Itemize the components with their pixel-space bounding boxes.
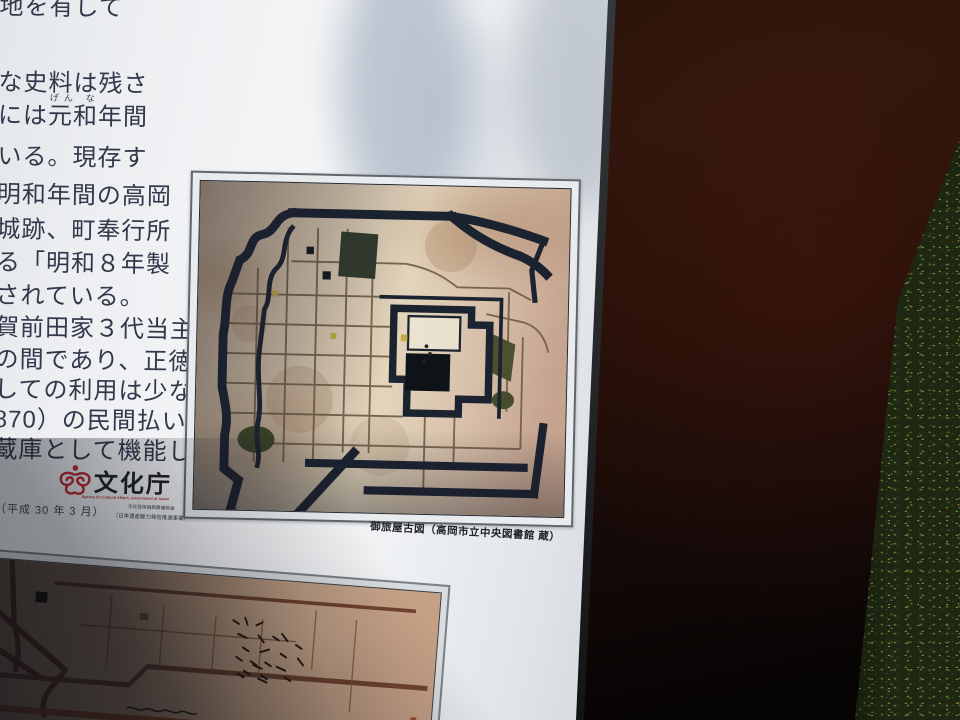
old-map-frame xyxy=(183,171,581,528)
second-old-map-illustration xyxy=(0,556,442,720)
photo-of-information-sign: 地を有して な史料は残さ には元和げん な年間 いる。現存す 明和年間の高岡 城… xyxy=(0,0,960,720)
sign-text-line: 明和年間の高岡 xyxy=(0,174,172,211)
sign-text-line-ruby: には元和げん な年間 xyxy=(0,92,148,132)
old-map-drawing xyxy=(193,181,570,517)
sign-panel: 地を有して な史料は残さ には元和げん な年間 いる。現存す 明和年間の高岡 城… xyxy=(0,0,680,720)
ruby-suffix: 年間 xyxy=(98,103,148,131)
agency-name: 文化庁 xyxy=(94,463,173,500)
sign-text-line: いる。現存す xyxy=(0,136,148,173)
otoya-old-map-illustration xyxy=(192,180,571,518)
agency-plum-blossom-icon xyxy=(56,462,95,497)
grant-line-2: （日本遺産魅力発信推進事業） xyxy=(112,512,189,524)
second-old-map-frame xyxy=(0,547,451,720)
ruby-annotation: 元和げん な xyxy=(48,103,98,131)
sign-text-line: 城跡、町奉行所 xyxy=(0,209,172,246)
sign-text-line: 地を有して xyxy=(0,0,124,23)
second-old-map-drawing xyxy=(0,557,441,720)
ruby-prefix: には xyxy=(0,102,48,130)
sign-text-line: る「明和８年製 xyxy=(0,242,171,279)
